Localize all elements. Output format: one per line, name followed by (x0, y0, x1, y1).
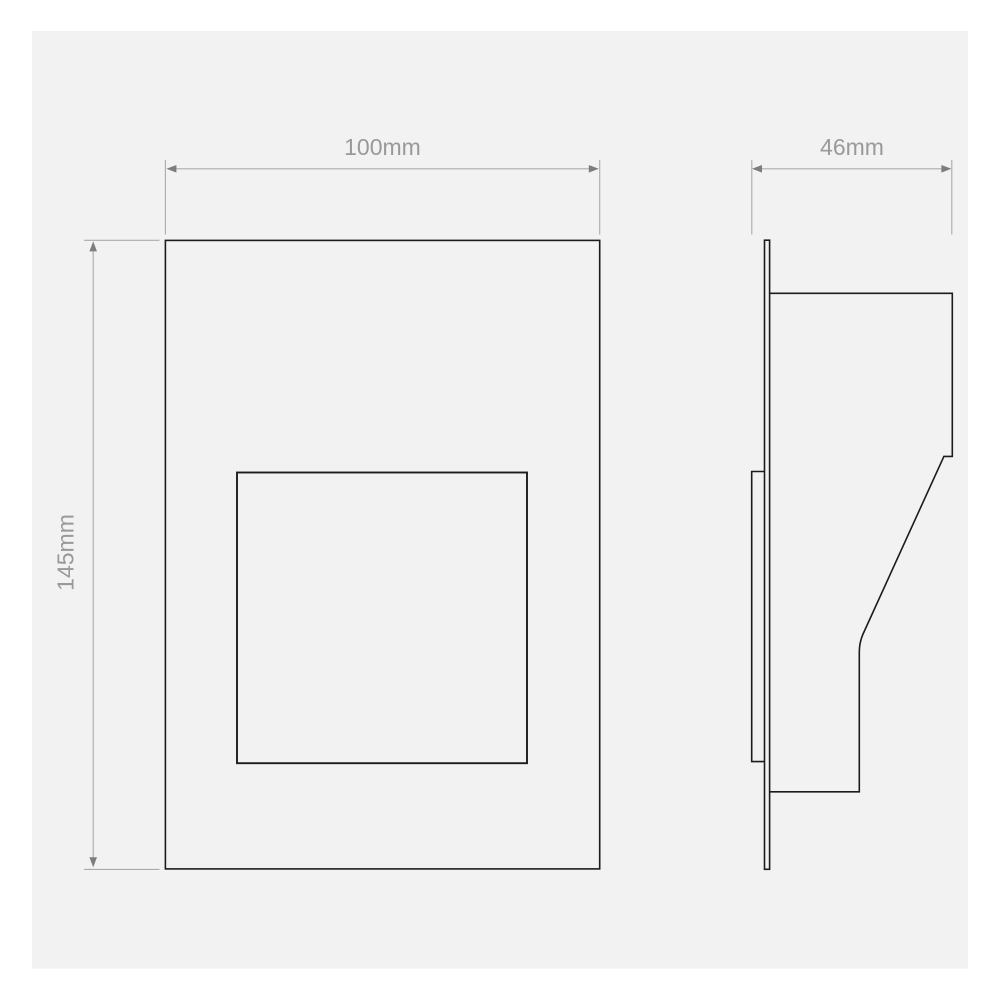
svg-text:145mm: 145mm (53, 514, 79, 591)
svg-text:100mm: 100mm (344, 134, 421, 160)
svg-text:46mm: 46mm (820, 134, 884, 160)
